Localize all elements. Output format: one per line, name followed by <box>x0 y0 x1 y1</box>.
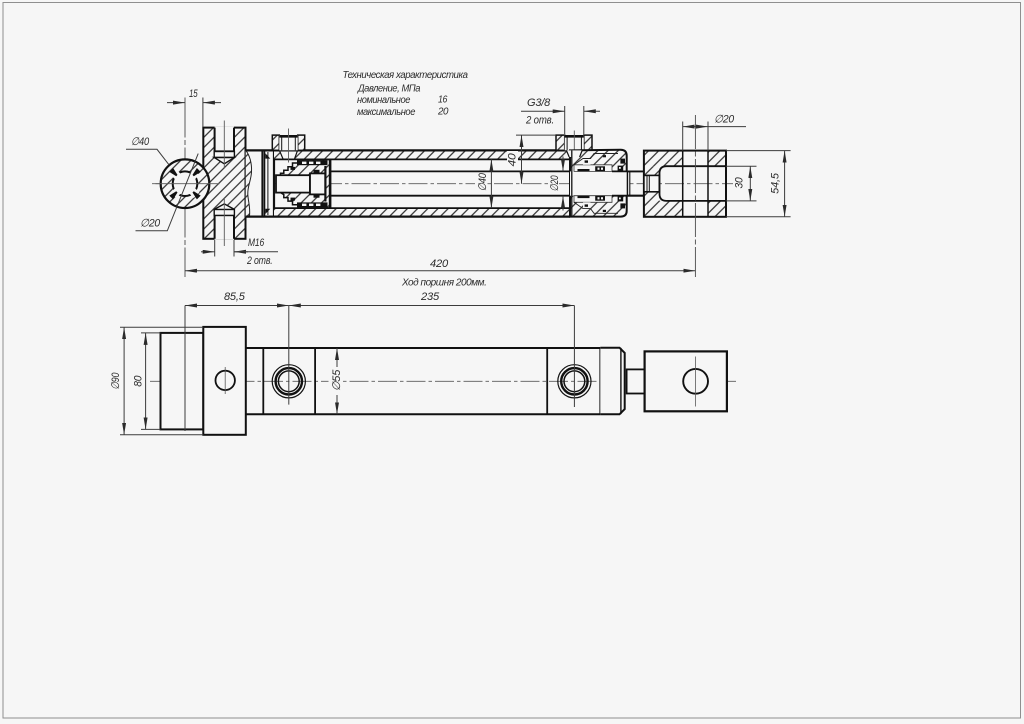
svg-text:20: 20 <box>437 107 449 118</box>
svg-text:G3/8: G3/8 <box>527 97 551 109</box>
svg-text:номинальное: номинальное <box>357 95 411 106</box>
svg-text:2 отв.: 2 отв. <box>246 255 272 267</box>
svg-text:∅90: ∅90 <box>110 372 122 390</box>
svg-text:80: 80 <box>133 375 145 387</box>
svg-text:15: 15 <box>189 88 198 100</box>
svg-text:M16: M16 <box>248 237 265 249</box>
svg-text:∅55: ∅55 <box>331 369 343 391</box>
svg-text:420: 420 <box>430 258 449 270</box>
svg-text:40: 40 <box>507 152 519 166</box>
svg-text:2 отв.: 2 отв. <box>525 115 554 127</box>
svg-text:∅20: ∅20 <box>140 218 161 230</box>
svg-text:максимальное: максимальное <box>357 107 416 118</box>
svg-text:∅40: ∅40 <box>477 172 489 191</box>
svg-text:235: 235 <box>420 291 440 303</box>
svg-text:54,5: 54,5 <box>770 172 782 194</box>
svg-text:Давление, МПа: Давление, МПа <box>357 83 421 94</box>
svg-text:∅20: ∅20 <box>714 114 735 126</box>
svg-text:∅40: ∅40 <box>131 136 150 148</box>
svg-text:85,5: 85,5 <box>224 291 246 303</box>
svg-text:Ход поршня 200мм.: Ход поршня 200мм. <box>401 277 486 288</box>
svg-text:16: 16 <box>438 95 448 106</box>
svg-text:Техническая характеристика: Техническая характеристика <box>343 70 469 81</box>
svg-text:30: 30 <box>734 177 746 189</box>
svg-text:∅20: ∅20 <box>549 175 561 192</box>
